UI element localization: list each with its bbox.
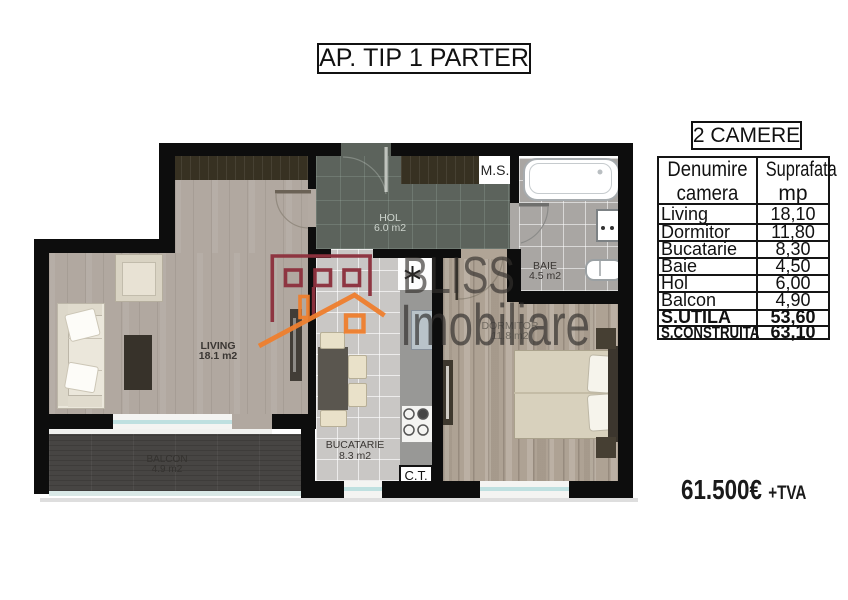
svg-text:Imobiliare: Imobiliare — [400, 293, 590, 358]
